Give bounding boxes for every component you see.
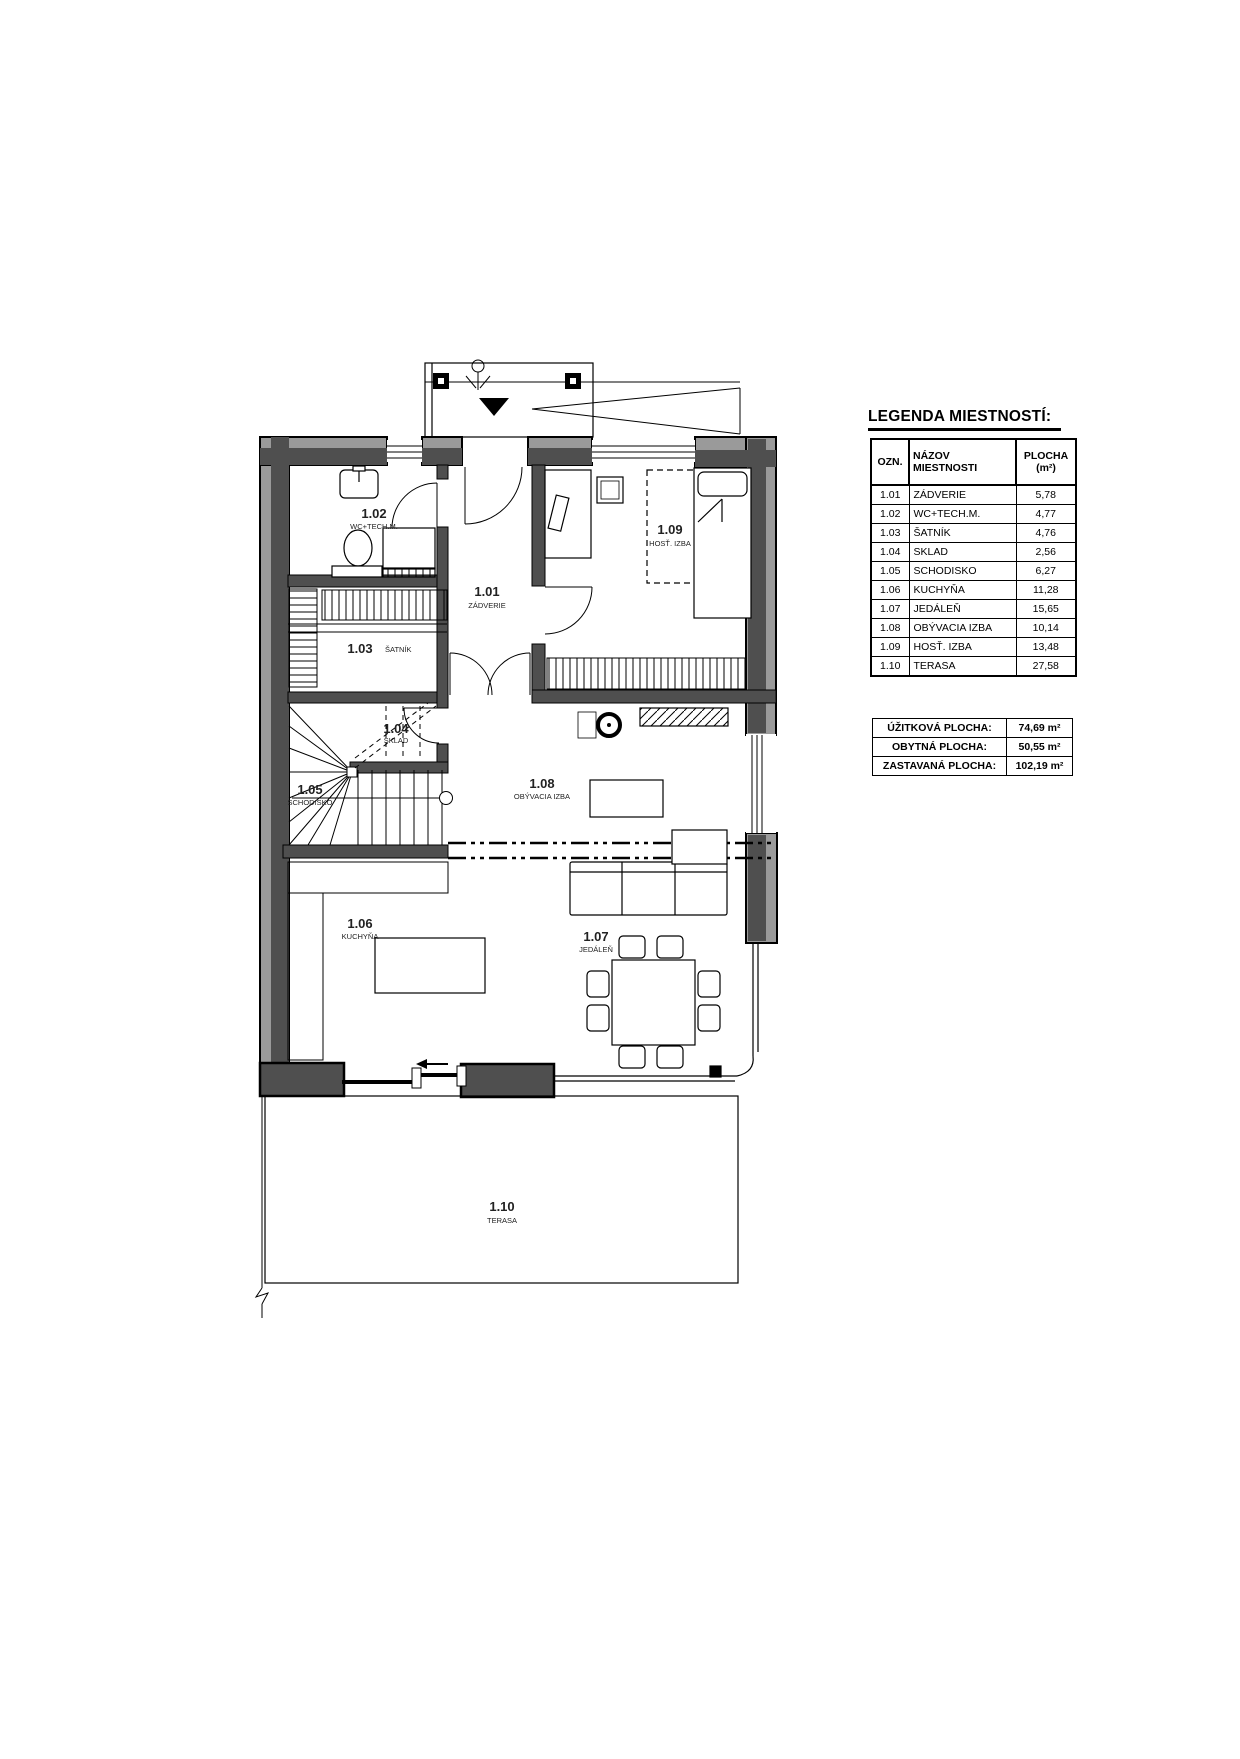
room-label-106: 1.06 [347,916,372,931]
kitchen-island-icon [375,938,485,993]
cell-plocha: 4,77 [1016,505,1076,524]
room-name-107: JEDÁLEŇ [579,945,613,954]
room-name-106: KUCHYŇA [342,932,379,941]
room-name-110: TERASA [487,1216,517,1225]
legend-table: OZN. NÁZOV MIESTNOSTI PLOCHA (m²) 1.01ZÁ… [870,438,1077,677]
staircase [289,703,453,845]
table-row: 1.05SCHODISKO6,27 [871,562,1076,581]
chair-icon [698,971,720,997]
table-row: 1.04SKLAD2,56 [871,543,1076,562]
room-label-101: 1.01 [474,584,499,599]
table-row: 1.01ZÁDVERIE5,78 [871,485,1076,505]
sliding-terrace-door [342,1066,466,1088]
plocha-line2: (m²) [1036,462,1056,474]
canopy-posts [433,373,581,389]
cell-ozn: 1.04 [871,543,909,562]
cell-nazov: SCHODISKO [909,562,1016,581]
kitchen-counter-top [288,862,448,893]
chair-icon [587,1005,609,1031]
dining-table-icon [612,960,695,1045]
room-label-110: 1.10 [489,1199,514,1214]
cell-nazov: KUCHYŇA [909,581,1016,600]
cell-nazov: ŠATNÍK [909,524,1016,543]
cell-ozn: 1.05 [871,562,909,581]
summary-value: 50,55 m² [1007,738,1073,757]
chair-icon [587,971,609,997]
legend-title: LEGENDA MIESTNOSTÍ: [868,408,1061,431]
washing-machine-icon [383,528,435,569]
legend: LEGENDA MIESTNOSTÍ: OZN. NÁZOV MIESTNOST… [868,408,1068,677]
table-row: 1.06KUCHYŇA11,28 [871,581,1076,600]
room-label-108: 1.08 [529,776,554,791]
wardrobe-103 [288,589,447,687]
entrance-canopy [425,363,740,437]
cell-plocha: 27,58 [1016,657,1076,677]
legend-header-nazov: NÁZOV MIESTNOSTI [909,439,1016,485]
floor-plan-svg: 1.01 ZÁDVERIE 1.02 WC+TECH.M. 1.03 ŠATNÍ… [0,0,1240,1754]
room-label-105: 1.05 [297,782,322,797]
bed-icon [694,468,751,618]
room-name-102: WC+TECH.M. [350,522,398,531]
toilet-icon [344,530,372,566]
cell-nazov: HOSŤ. IZBA [909,638,1016,657]
chair-icon [619,1046,645,1068]
living-room-furniture [570,708,728,915]
radiator-icon [640,708,728,726]
floor-plan: 1.01 ZÁDVERIE 1.02 WC+TECH.M. 1.03 ŠATNÍ… [0,0,1240,1754]
table-row: ÚŽITKOVÁ PLOCHA: 74,69 m² [873,719,1073,738]
summary-label: OBYTNÁ PLOCHA: [873,738,1007,757]
cell-nazov: WC+TECH.M. [909,505,1016,524]
kitchen-counter-left [288,893,323,1060]
tv-cabinet-icon [590,780,663,817]
cell-plocha: 5,78 [1016,485,1076,505]
cell-plocha: 2,56 [1016,543,1076,562]
legend-header-ozn: OZN. [871,439,909,485]
cell-ozn: 1.10 [871,657,909,677]
cell-plocha: 6,27 [1016,562,1076,581]
plocha-line1: PLOCHA [1024,450,1068,462]
cell-nazov: OBÝVACIA IZBA [909,619,1016,638]
room-label-103: 1.03 [347,641,372,656]
cell-plocha: 13,48 [1016,638,1076,657]
table-row: 1.09HOSŤ. IZBA13,48 [871,638,1076,657]
cell-ozn: 1.02 [871,505,909,524]
summary-value: 74,69 m² [1007,719,1073,738]
cell-ozn: 1.01 [871,485,909,505]
room-name-104: SKLAD [384,736,409,745]
cell-ozn: 1.03 [871,524,909,543]
guest-room-furniture [545,468,751,618]
room-label-109: 1.09 [657,522,682,537]
cell-ozn: 1.09 [871,638,909,657]
cell-nazov: SKLAD [909,543,1016,562]
dining-furniture [587,936,720,1068]
summary-value: 102,19 m² [1007,757,1073,776]
room-name-103: ŠATNÍK [385,645,412,654]
cell-nazov: TERASA [909,657,1016,677]
room-label-104: 1.04 [383,721,409,736]
room-name-105: SCHODISKO [287,798,332,807]
table-row: 1.07JEDÁLEŇ15,65 [871,600,1076,619]
cell-ozn: 1.07 [871,600,909,619]
room-name-109: HOSŤ. IZBA [649,539,691,548]
chair-icon [657,1046,683,1068]
table-row: OBYTNÁ PLOCHA: 50,55 m² [873,738,1073,757]
legend-header-plocha: PLOCHA (m²) [1016,439,1076,485]
room-label-102: 1.02 [361,506,386,521]
cell-nazov: ZÁDVERIE [909,485,1016,505]
table-row: 1.02WC+TECH.M.4,77 [871,505,1076,524]
chair-icon [657,936,683,958]
table-row: 1.08OBÝVACIA IZBA10,14 [871,619,1076,638]
room-name-108: OBÝVACIA IZBA [514,792,570,801]
entrance-arrow-icon [479,398,509,416]
table-row: 1.10TERASA27,58 [871,657,1076,677]
chair-icon [619,936,645,958]
summary-label: ZASTAVANÁ PLOCHA: [873,757,1007,776]
sofa-icon [570,830,727,915]
summary-label: ÚŽITKOVÁ PLOCHA: [873,719,1007,738]
chair-icon [698,1005,720,1031]
table-row: 1.03ŠATNÍK4,76 [871,524,1076,543]
kitchen-furniture [288,862,485,1060]
cell-ozn: 1.08 [871,619,909,638]
area-summary-table: ÚŽITKOVÁ PLOCHA: 74,69 m² OBYTNÁ PLOCHA:… [872,718,1073,776]
cell-plocha: 15,65 [1016,600,1076,619]
table-row: ZASTAVANÁ PLOCHA: 102,19 m² [873,757,1073,776]
room-name-101: ZÁDVERIE [468,601,506,610]
cell-ozn: 1.06 [871,581,909,600]
cell-plocha: 4,76 [1016,524,1076,543]
wardrobe-109 [547,658,745,689]
cell-nazov: JEDÁLEŇ [909,600,1016,619]
stove-icon [578,712,620,738]
canopy-lamp-icon [466,360,490,390]
cell-plocha: 11,28 [1016,581,1076,600]
cell-plocha: 10,14 [1016,619,1076,638]
room-label-107: 1.07 [583,929,608,944]
